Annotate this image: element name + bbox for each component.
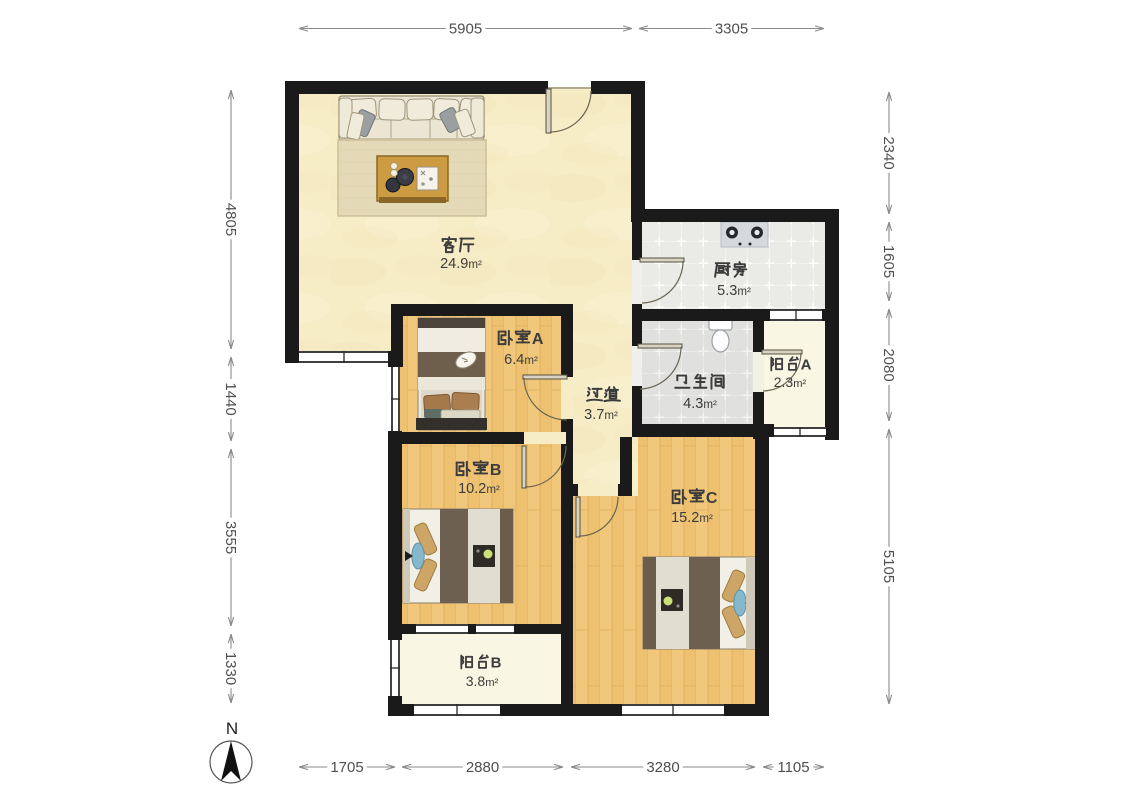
svg-text:B: B (490, 462, 502, 479)
svg-text:24.9m²: 24.9m² (440, 256, 482, 272)
svg-text:3305: 3305 (715, 21, 748, 38)
svg-text:A: A (801, 356, 812, 373)
svg-text:15.2m²: 15.2m² (671, 510, 713, 526)
svg-text:4805: 4805 (222, 203, 239, 236)
svg-text:2340: 2340 (880, 136, 897, 169)
svg-text:A: A (532, 331, 544, 348)
svg-text:3555: 3555 (222, 521, 239, 554)
svg-text:5105: 5105 (880, 550, 897, 583)
svg-text:5.3m²: 5.3m² (717, 283, 751, 299)
svg-text:1105: 1105 (777, 759, 809, 776)
svg-text:10.2m²: 10.2m² (458, 481, 500, 497)
svg-text:5905: 5905 (449, 21, 482, 38)
svg-text:N: N (226, 719, 238, 738)
svg-text:1705: 1705 (330, 759, 363, 776)
svg-text:2880: 2880 (466, 759, 499, 776)
svg-text:2080: 2080 (880, 348, 897, 381)
svg-text:1330: 1330 (222, 652, 239, 685)
svg-text:3.7m²: 3.7m² (584, 407, 618, 423)
svg-text:3280: 3280 (646, 759, 679, 776)
svg-text:C: C (706, 490, 718, 507)
svg-text:4.3m²: 4.3m² (683, 396, 717, 412)
svg-text:1605: 1605 (880, 245, 897, 278)
svg-text:B: B (491, 654, 502, 671)
svg-text:6.4m²: 6.4m² (504, 352, 538, 368)
svg-text:1440: 1440 (222, 382, 239, 415)
